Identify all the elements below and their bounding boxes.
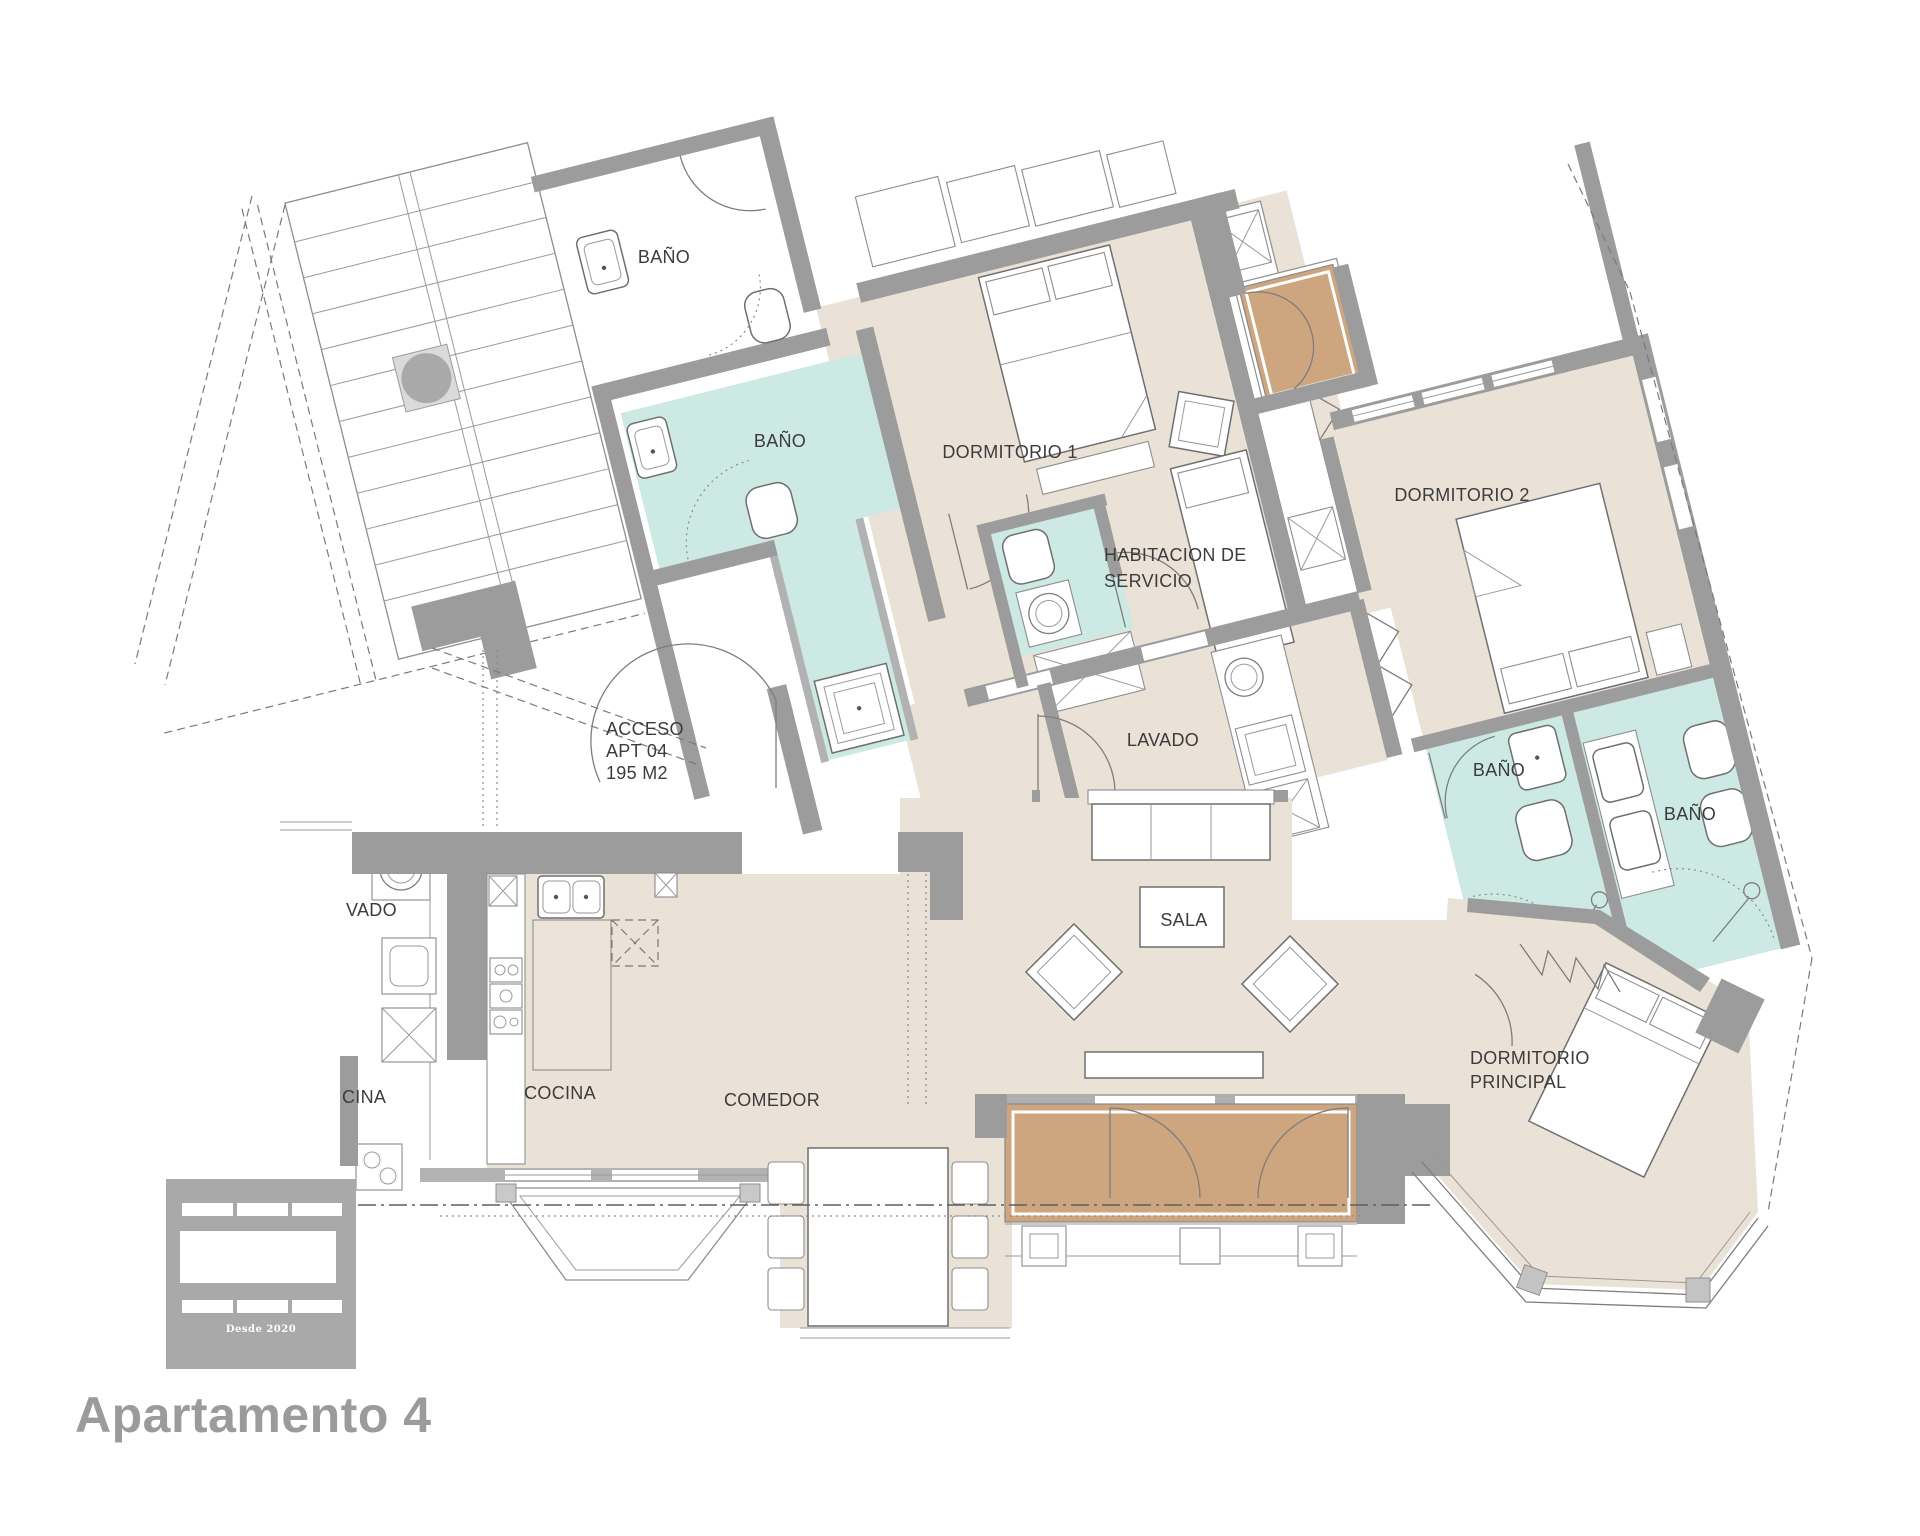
edge-label-lavado: VADO: [346, 900, 397, 920]
room-label-comedor: COMEDOR: [724, 1090, 820, 1110]
chair: [952, 1268, 988, 1310]
room-label-dormitorio-principal-1: DORMITORIO: [1470, 1048, 1590, 1068]
stove: [490, 958, 522, 1034]
toilet: [742, 286, 793, 346]
chair: [768, 1162, 804, 1204]
chair: [952, 1162, 988, 1204]
room-label-habitacion-servicio-1: HABITACION DE: [1104, 545, 1247, 565]
page-title: Apartamento 4: [75, 1387, 432, 1443]
center-balcony: [975, 1094, 1405, 1266]
sofa-back: [1088, 790, 1274, 804]
logo-tagline: Desde 2020: [226, 1324, 296, 1335]
chair: [768, 1216, 804, 1258]
room-label-cocina: COCINA: [524, 1083, 596, 1103]
room-label-bano-1: BAÑO: [754, 430, 806, 451]
stove: [356, 1144, 402, 1190]
room-label-sala: SALA: [1160, 910, 1207, 930]
chair: [768, 1268, 804, 1310]
sofa: [1092, 804, 1270, 860]
kitchen-island: [533, 920, 611, 1070]
access-note-3: 195 M2: [606, 763, 668, 783]
room-label-dormitorio-principal-2: PRINCIPAL: [1470, 1072, 1566, 1092]
room-label-habitacion-servicio-2: SERVICIO: [1104, 571, 1192, 591]
room-label-lavado: LAVADO: [1127, 730, 1199, 750]
kitchen-sink: [538, 876, 604, 918]
company-logo: Desde 2020: [166, 1179, 356, 1369]
access-note-2: APT 04: [606, 741, 668, 761]
dining-table: [808, 1148, 948, 1326]
room-label-bano-top: BAÑO: [638, 246, 690, 267]
room-label-bano-2: BAÑO: [1473, 759, 1525, 780]
sink: [575, 229, 630, 295]
room-label-dormitorio-1: DORMITORIO 1: [942, 442, 1077, 462]
left-bay-window: [496, 1184, 760, 1280]
staircase: [46, 138, 651, 759]
floor-plan-drawing: BAÑO BAÑO DORMITORIO 1 HABITACION DE SER…: [0, 0, 1920, 1536]
room-label-dormitorio-2: DORMITORIO 2: [1394, 485, 1529, 505]
room-label-bano-3: BAÑO: [1664, 803, 1716, 824]
access-note-1: ACCESO: [606, 719, 684, 739]
armchair: [1169, 392, 1234, 457]
floor-plan-page: BAÑO BAÑO DORMITORIO 1 HABITACION DE SER…: [0, 0, 1920, 1536]
cocina-floor: [487, 874, 782, 1170]
console: [1085, 1052, 1263, 1078]
chair: [952, 1216, 988, 1258]
edge-label-cocina: CINA: [342, 1087, 386, 1107]
hall-floor: [1285, 920, 1475, 1104]
neighbour-kitchen: [280, 822, 436, 1190]
site-dashes: [135, 196, 285, 685]
